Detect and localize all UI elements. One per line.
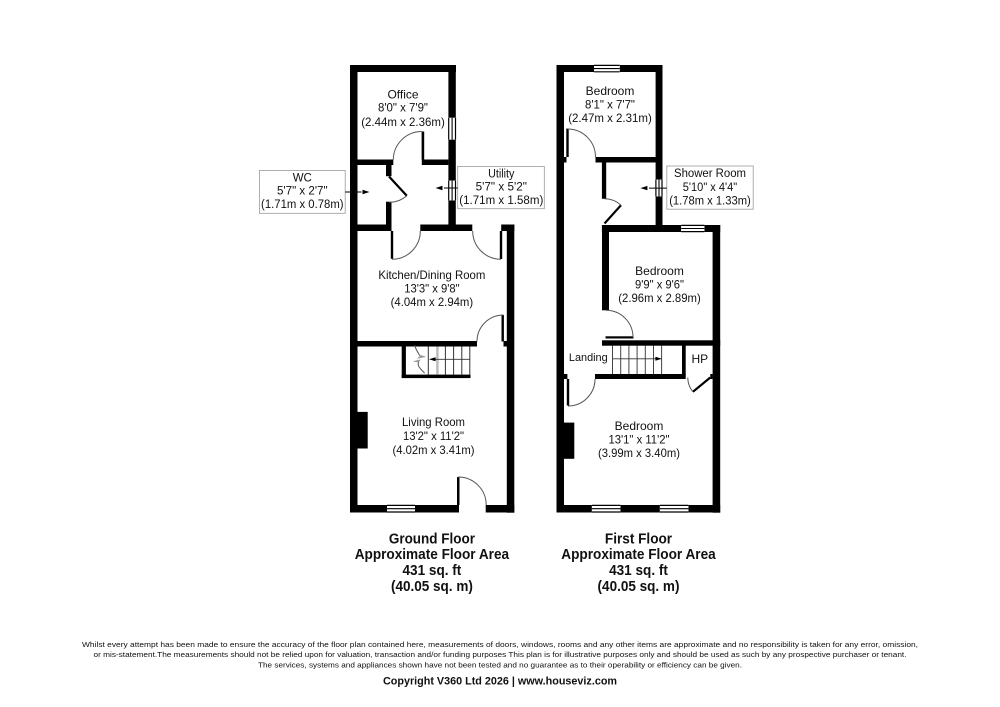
svg-text:or mis-statement.The measureme: or mis-statement.The measurements should… (94, 650, 907, 659)
svg-text:(1.71m x 0.78m): (1.71m x 0.78m) (261, 199, 344, 211)
svg-text:Kitchen/Dining Room: Kitchen/Dining Room (378, 268, 485, 282)
svg-text:First Floor: First Floor (605, 531, 673, 547)
svg-text:(4.04m x 2.94m): (4.04m x 2.94m) (391, 295, 474, 309)
svg-text:13'1" x 11'2": 13'1" x 11'2" (608, 432, 669, 446)
svg-text:13'2" x 11'2": 13'2" x 11'2" (403, 429, 464, 443)
svg-text:(1.71m x 1.58m): (1.71m x 1.58m) (459, 195, 543, 207)
svg-text:5'10" x 4'4": 5'10" x 4'4" (683, 182, 737, 194)
svg-text:The services, systems and appl: The services, systems and appliances sho… (258, 661, 742, 670)
svg-text:(3.99m x 3.40m): (3.99m x 3.40m) (598, 446, 680, 460)
svg-text:Bedroom: Bedroom (615, 419, 664, 433)
svg-text:(2.47m x 2.31m): (2.47m x 2.31m) (568, 111, 652, 125)
svg-text:(40.05 sq. m): (40.05 sq. m) (598, 579, 680, 595)
svg-text:Bedroom: Bedroom (635, 264, 684, 278)
svg-text:Utility: Utility (488, 169, 515, 181)
svg-text:5'7" x 2'7": 5'7" x 2'7" (277, 186, 328, 198)
svg-text:Shower Room: Shower Room (674, 168, 746, 180)
svg-text:Copyright V360 Ltd 2026 | www.: Copyright V360 Ltd 2026 | www.houseviz.c… (383, 675, 617, 687)
svg-text:HP: HP (691, 352, 708, 366)
svg-text:13'3" x 9'8": 13'3" x 9'8" (404, 281, 459, 295)
svg-text:(1.78m x 1.33m): (1.78m x 1.33m) (669, 195, 751, 207)
svg-text:Approximate Floor Area: Approximate Floor Area (355, 547, 510, 563)
svg-text:(2.44m x 2.36m): (2.44m x 2.36m) (361, 115, 445, 129)
svg-text:(2.96m x 2.89m): (2.96m x 2.89m) (618, 291, 701, 305)
svg-text:Bedroom: Bedroom (586, 84, 635, 98)
svg-text:WC: WC (293, 172, 312, 184)
svg-text:Approximate Floor Area: Approximate Floor Area (561, 547, 716, 563)
svg-text:9'9" x 9'6": 9'9" x 9'6" (635, 277, 684, 291)
svg-text:Living Room: Living Room (402, 415, 465, 429)
svg-text:431 sq. ft: 431 sq. ft (609, 563, 668, 579)
svg-text:431 sq. ft: 431 sq. ft (403, 563, 462, 579)
svg-text:Landing: Landing (569, 352, 608, 364)
svg-text:8'0" x 7'9": 8'0" x 7'9" (378, 101, 428, 115)
svg-text:(40.05 sq. m): (40.05 sq. m) (391, 579, 473, 595)
svg-text:Ground Floor: Ground Floor (389, 531, 475, 547)
svg-text:8'1" x 7'7": 8'1" x 7'7" (585, 97, 635, 111)
svg-text:5'7" x 5'2": 5'7" x 5'2" (476, 182, 527, 194)
svg-text:Office: Office (387, 88, 418, 102)
svg-text:Whilst every attempt has been: Whilst every attempt has been made to en… (82, 640, 918, 649)
svg-text:(4.02m x 3.41m): (4.02m x 3.41m) (393, 443, 475, 457)
